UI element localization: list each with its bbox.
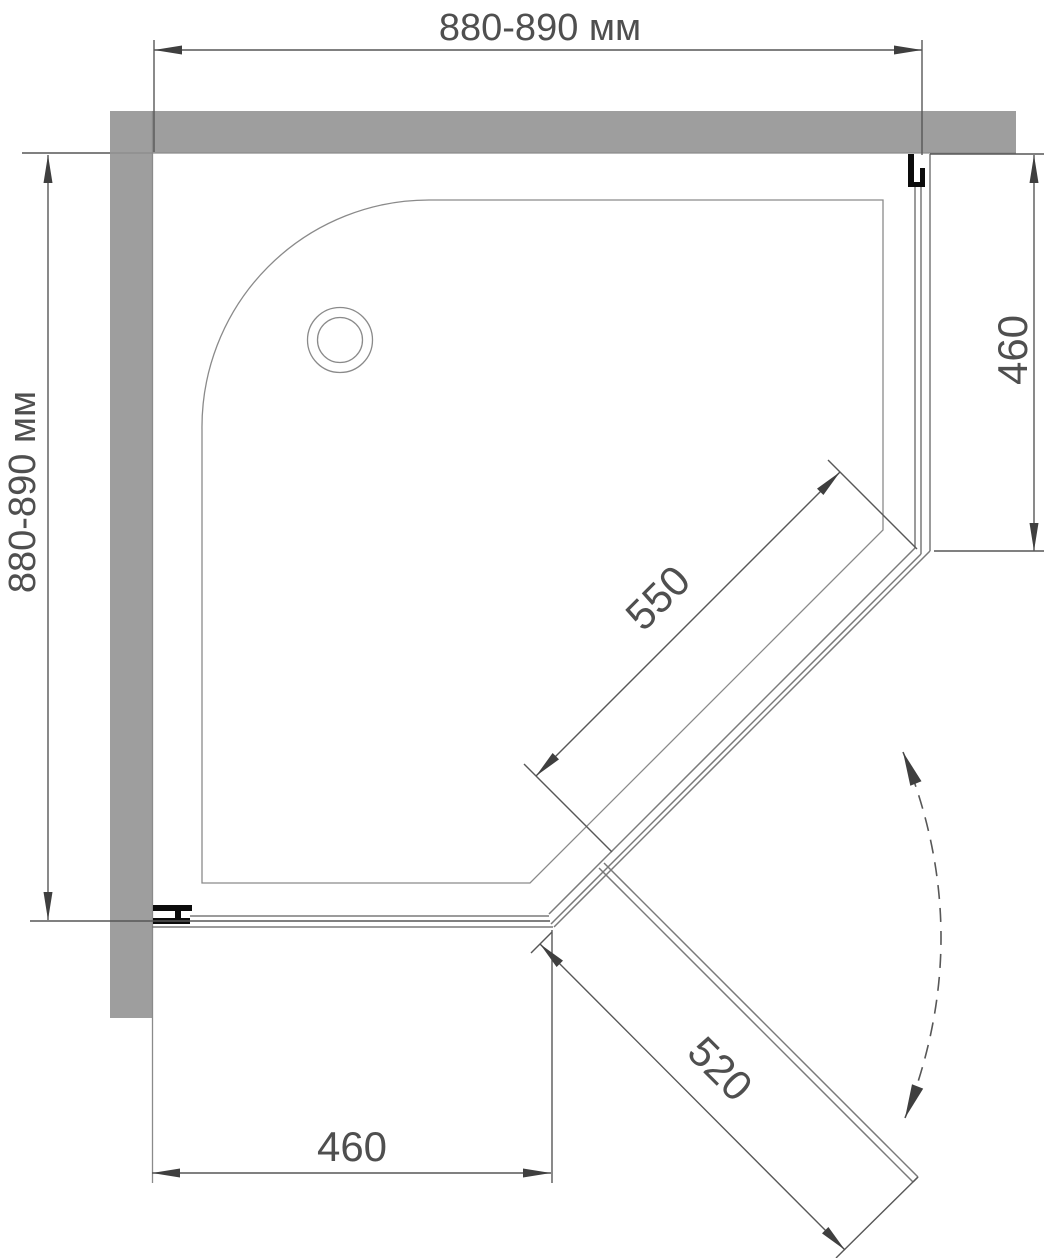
profile-tr-stub — [920, 168, 925, 184]
label-right-side: 460 — [989, 315, 1036, 385]
drawing-canvas: 880-890 мм 880-890 мм 460 460 550 520 — [0, 0, 1048, 1258]
label-left-height: 880-890 мм — [2, 391, 44, 593]
label-top-width: 880-890 мм — [439, 7, 641, 49]
wall-top — [110, 111, 1016, 153]
profile-bl-top-bar — [153, 905, 192, 911]
shower-enclosure-technical-drawing: 880-890 мм 880-890 мм 460 460 550 520 — [0, 0, 1048, 1258]
background — [0, 0, 1048, 1258]
label-bottom-side: 460 — [317, 1123, 387, 1170]
wall-left — [110, 111, 152, 1018]
profile-bl-stub — [175, 909, 181, 921]
